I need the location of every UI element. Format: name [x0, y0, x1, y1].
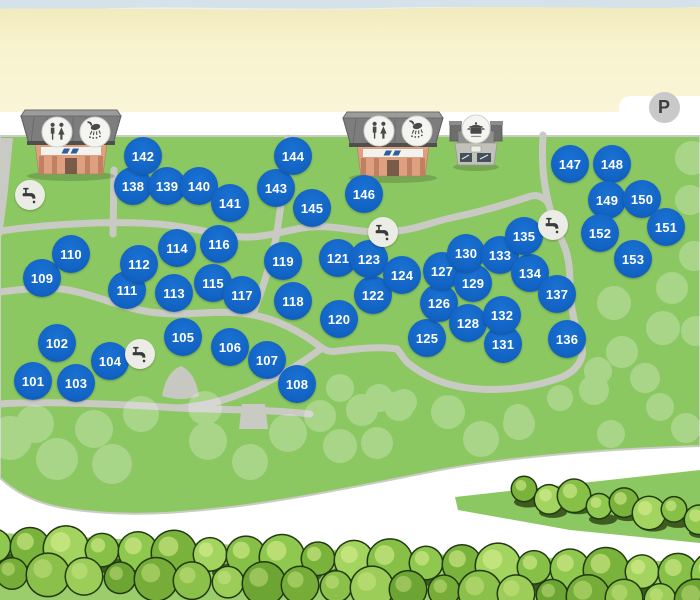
water-tap-icon[interactable] — [15, 180, 45, 210]
pitch-marker-112[interactable]: 112 — [120, 245, 158, 283]
pitch-marker-104[interactable]: 104 — [91, 342, 129, 380]
pitch-marker-136[interactable]: 136 — [548, 320, 586, 358]
pitch-marker-117[interactable]: 117 — [223, 276, 261, 314]
pitch-marker-106[interactable]: 106 — [211, 328, 249, 366]
pitch-marker-113[interactable]: 113 — [155, 274, 193, 312]
water-tap-icon[interactable] — [368, 217, 398, 247]
pitch-marker-149[interactable]: 149 — [588, 181, 626, 219]
pitch-marker-151[interactable]: 151 — [647, 208, 685, 246]
pitch-marker-125[interactable]: 125 — [408, 319, 446, 357]
pitch-marker-145[interactable]: 145 — [293, 189, 331, 227]
pitch-marker-148[interactable]: 148 — [593, 145, 631, 183]
pitch-marker-130[interactable]: 130 — [447, 234, 485, 272]
parking-label: P — [658, 97, 670, 118]
pitch-marker-152[interactable]: 152 — [581, 214, 619, 252]
pitch-marker-120[interactable]: 120 — [320, 300, 358, 338]
pitch-marker-102[interactable]: 102 — [38, 324, 76, 362]
pitch-marker-108[interactable]: 108 — [278, 365, 316, 403]
pitch-marker-105[interactable]: 105 — [164, 318, 202, 356]
pitch-marker-103[interactable]: 103 — [57, 364, 95, 402]
pitch-marker-101[interactable]: 101 — [14, 362, 52, 400]
pitch-marker-153[interactable]: 153 — [614, 240, 652, 278]
parking-badge[interactable]: P — [649, 92, 680, 123]
pitch-marker-144[interactable]: 144 — [274, 137, 312, 175]
pitch-marker-146[interactable]: 146 — [345, 175, 383, 213]
pitch-marker-141[interactable]: 141 — [211, 184, 249, 222]
pitch-marker-118[interactable]: 118 — [274, 282, 312, 320]
water-tap-icon[interactable] — [125, 339, 155, 369]
water-tap-icon[interactable] — [538, 210, 568, 240]
pitch-marker-132[interactable]: 132 — [483, 296, 521, 334]
pitch-marker-128[interactable]: 128 — [449, 304, 487, 342]
pitch-marker-116[interactable]: 116 — [200, 225, 238, 263]
pitch-marker-110[interactable]: 110 — [52, 235, 90, 273]
pitch-marker-124[interactable]: 124 — [383, 256, 421, 294]
campsite-map: P 10110210310410510610710810911011111211… — [0, 0, 700, 600]
pitch-marker-147[interactable]: 147 — [551, 145, 589, 183]
pitch-marker-142[interactable]: 142 — [124, 137, 162, 175]
pitch-marker-119[interactable]: 119 — [264, 242, 302, 280]
pitch-marker-114[interactable]: 114 — [158, 229, 196, 267]
pitch-marker-137[interactable]: 137 — [538, 275, 576, 313]
map-markers: P 10110210310410510610710810911011111211… — [0, 0, 700, 600]
